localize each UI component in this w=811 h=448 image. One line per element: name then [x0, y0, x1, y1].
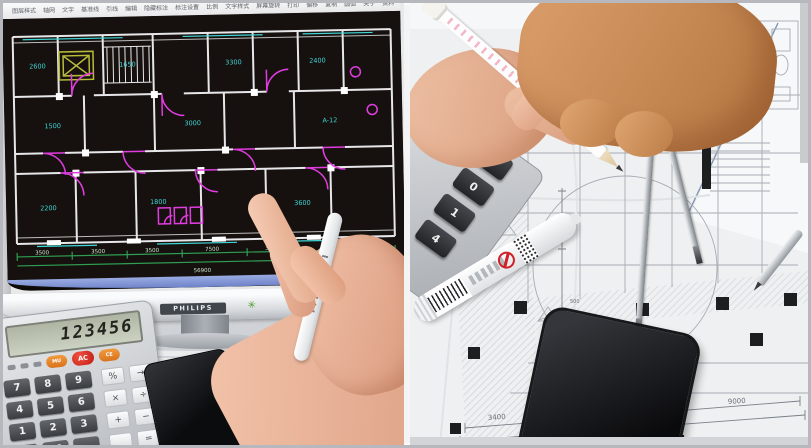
svg-text:1650: 1650	[119, 60, 136, 68]
cad-toolbar-item[interactable]: 编辑	[125, 3, 137, 12]
cad-toolbar-item[interactable]: 关于	[363, 3, 375, 8]
cad-toolbar-item[interactable]: 轴网	[43, 5, 55, 14]
calculator-function-key[interactable]: ×	[103, 388, 128, 408]
calculator-function-key[interactable]	[109, 432, 134, 445]
svg-text:2200: 2200	[40, 204, 57, 212]
svg-text:7500: 7500	[205, 247, 220, 253]
calculator-number-key[interactable]: 00	[42, 440, 70, 445]
svg-text:3500: 3500	[91, 249, 106, 255]
calculator-mu-key[interactable]: MU	[46, 354, 68, 368]
left-photo-cad-workstation: GB 规范 图层样式轴网文字基准线引线编辑隐藏标注标注设置比例文字样式屏幕旋转打…	[3, 3, 404, 445]
cad-toolbar-item[interactable]: 基准线	[81, 4, 99, 13]
svg-text:56900: 56900	[193, 268, 211, 274]
svg-text:3600: 3600	[294, 199, 311, 207]
svg-text:3500: 3500	[145, 248, 160, 254]
calculator-number-key[interactable]: 1	[9, 422, 37, 442]
svg-text:500: 500	[570, 299, 580, 305]
cad-toolbar-item[interactable]: 隐藏标注	[144, 3, 168, 12]
desk-edge	[410, 437, 808, 445]
calculator-memory-key[interactable]	[33, 361, 42, 367]
calculator-function-key[interactable]: +	[106, 410, 131, 430]
calculator-number-key[interactable]: .	[73, 436, 101, 445]
svg-text:A-12: A-12	[322, 116, 337, 124]
svg-text:2600: 2600	[29, 62, 46, 70]
cad-toolbar-item[interactable]: 复制	[325, 3, 337, 8]
svg-text:2400: 2400	[309, 56, 326, 64]
calculator-display: 123456	[5, 310, 144, 358]
calculator-display-value: 123456	[59, 316, 134, 345]
cad-toolbar-item[interactable]: 圆弧	[344, 3, 356, 8]
monitor-brand-logo: PHILIPS	[160, 303, 226, 315]
cad-toolbar-item[interactable]: 标注设置	[175, 3, 199, 12]
two-panel-photo-collage: GB 规范 图层样式轴网文字基准线引线编辑隐藏标注标注设置比例文字样式屏幕旋转打…	[0, 0, 811, 448]
calculator-function-key[interactable]: %	[100, 366, 125, 386]
calculator-number-key[interactable]: 6	[67, 392, 95, 412]
svg-text:9000: 9000	[728, 397, 746, 406]
knuckle	[560, 99, 622, 147]
svg-text:3500: 3500	[35, 250, 50, 256]
calculator-number-key[interactable]: 3	[70, 414, 98, 434]
svg-text:1500: 1500	[44, 122, 61, 130]
cad-toolbar-item[interactable]: 文字样式	[225, 3, 249, 11]
calculator-number-key[interactable]: 7	[3, 378, 31, 398]
svg-text:3300: 3300	[225, 58, 242, 66]
calculator-number-key[interactable]: 9	[65, 370, 93, 390]
cad-toolbar-item[interactable]: 资料	[382, 3, 394, 7]
calculator-ac-key[interactable]: AC	[71, 350, 95, 367]
cad-toolbar-item[interactable]: 文字	[62, 5, 74, 14]
calculator-memory-key[interactable]	[20, 362, 29, 368]
calculator-memory-key[interactable]	[7, 364, 16, 370]
svg-text:3400: 3400	[488, 413, 506, 422]
cad-toolbar-item[interactable]: 比例	[206, 3, 218, 11]
cad-toolbar-item[interactable]: 引线	[106, 4, 118, 13]
cad-toolbar-item[interactable]: 偏移	[306, 3, 318, 9]
calculator-number-key[interactable]: 5	[37, 396, 65, 416]
cad-toolbar-item[interactable]: 打印	[287, 3, 299, 9]
svg-text:1800: 1800	[150, 198, 167, 206]
cad-toolbar-item[interactable]: 图层样式	[12, 5, 36, 15]
calculator-number-key[interactable]: 2	[39, 418, 67, 438]
cad-toolbar-item[interactable]: 屏幕旋转	[256, 3, 280, 10]
right-photo-blueprint-drafting: 3400 9000 30700 2000 500 200 0014	[410, 3, 808, 445]
calculator-number-keys: 789456123000.	[3, 370, 100, 445]
calculator-number-key[interactable]: 4	[6, 400, 34, 420]
svg-text:3000: 3000	[184, 119, 201, 127]
calculator-number-key[interactable]: 0	[11, 443, 39, 445]
calculator-number-key[interactable]: 8	[34, 374, 62, 394]
calculator-ce-key[interactable]: CE	[98, 348, 120, 362]
